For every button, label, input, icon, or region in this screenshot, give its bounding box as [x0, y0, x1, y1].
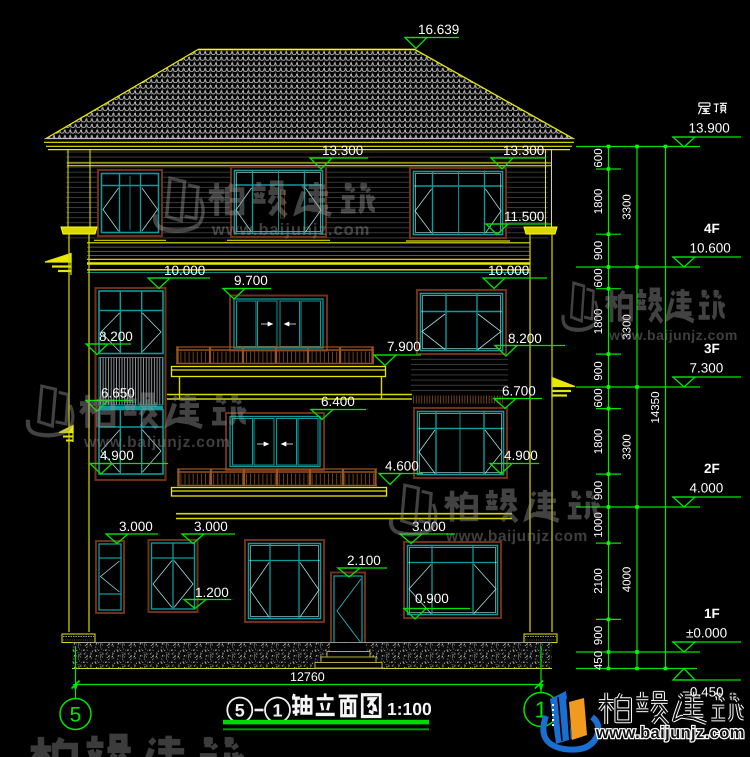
svg-text:11.500: 11.500: [504, 209, 544, 224]
svg-text:4000: 4000: [622, 567, 634, 593]
svg-text:3F: 3F: [704, 341, 720, 356]
svg-text:6.700: 6.700: [502, 384, 536, 399]
svg-text:2.100: 2.100: [347, 553, 381, 568]
svg-text:10.000: 10.000: [488, 263, 529, 278]
svg-text:7.900: 7.900: [387, 339, 421, 354]
svg-text:8.200: 8.200: [99, 329, 133, 344]
svg-text:www.baijunjz.com: www.baijunjz.com: [211, 221, 370, 239]
svg-text:13.300: 13.300: [322, 143, 363, 158]
svg-text:600: 600: [593, 388, 605, 407]
svg-text:−0.450: −0.450: [682, 685, 724, 700]
svg-text:±0.000: ±0.000: [686, 626, 727, 641]
svg-text:600: 600: [593, 148, 605, 167]
svg-text:13.300: 13.300: [503, 143, 544, 158]
svg-text:4.000: 4.000: [690, 481, 724, 496]
svg-text:1:100: 1:100: [387, 699, 432, 719]
svg-text:3.000: 3.000: [194, 519, 228, 534]
svg-text:1800: 1800: [593, 189, 605, 215]
svg-text:1F: 1F: [704, 606, 720, 621]
svg-text:3300: 3300: [622, 194, 634, 220]
svg-text:3300: 3300: [622, 434, 634, 460]
svg-text:4F: 4F: [704, 221, 720, 236]
svg-text:16.639: 16.639: [418, 22, 459, 37]
svg-text:2100: 2100: [593, 568, 605, 594]
svg-text:900: 900: [593, 626, 605, 645]
svg-text:www.baijunjz.com: www.baijunjz.com: [595, 724, 745, 742]
svg-text:www.baijunjz.com: www.baijunjz.com: [445, 528, 588, 545]
svg-text:1.200: 1.200: [195, 585, 229, 600]
svg-text:5: 5: [235, 701, 245, 721]
svg-text:10.600: 10.600: [690, 241, 731, 256]
svg-text:2F: 2F: [704, 461, 720, 476]
svg-text:7.300: 7.300: [690, 361, 724, 376]
svg-text:900: 900: [593, 361, 605, 380]
svg-text:4.900: 4.900: [504, 448, 538, 463]
svg-text:450: 450: [593, 651, 605, 670]
svg-text:1: 1: [272, 701, 282, 721]
svg-text:13.900: 13.900: [689, 121, 730, 136]
svg-text:9.700: 9.700: [234, 273, 268, 288]
svg-text:10.000: 10.000: [164, 263, 205, 278]
svg-text:www.baijunjz.com: www.baijunjz.com: [608, 327, 738, 343]
svg-text:5: 5: [70, 704, 82, 727]
svg-text:600: 600: [593, 268, 605, 287]
svg-text:900: 900: [593, 241, 605, 260]
svg-text:12760: 12760: [290, 670, 325, 684]
svg-text:1800: 1800: [593, 429, 605, 455]
svg-text:6.400: 6.400: [321, 394, 355, 409]
svg-text:8.200: 8.200: [508, 331, 542, 346]
svg-text:14350: 14350: [650, 392, 662, 424]
svg-text:4.600: 4.600: [385, 459, 419, 474]
svg-text:www.baijunjz.com: www.baijunjz.com: [83, 434, 231, 451]
svg-text:0.900: 0.900: [415, 591, 449, 606]
svg-text:3.000: 3.000: [119, 519, 153, 534]
